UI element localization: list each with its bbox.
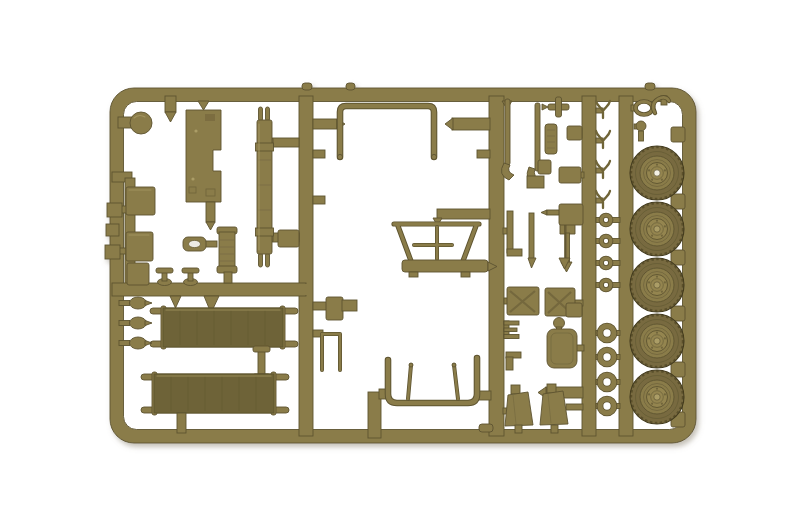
sprue xyxy=(105,83,696,443)
small-box-part xyxy=(538,160,551,174)
sprue-photo xyxy=(0,0,800,530)
small-box-part xyxy=(566,303,582,317)
stub xyxy=(313,150,325,158)
e-bracket-part xyxy=(504,321,519,339)
gate-nub xyxy=(645,83,655,90)
gate-nub xyxy=(479,424,493,432)
small-bracket-part xyxy=(278,230,299,247)
road-wheel-part xyxy=(630,370,684,424)
stub xyxy=(477,150,490,158)
knob-parts xyxy=(119,297,152,349)
small-cylinder-part xyxy=(545,124,557,154)
small-bracket-part xyxy=(527,176,544,188)
gate-nub xyxy=(302,83,312,90)
runner-v3 xyxy=(582,96,596,436)
small-box-part xyxy=(567,126,582,140)
rail-block-part xyxy=(671,127,685,142)
road-wheel-parts xyxy=(630,146,684,424)
runner-v1 xyxy=(299,96,313,436)
sprue-svg xyxy=(0,0,800,530)
road-wheel-part xyxy=(630,202,684,256)
road-wheel-part xyxy=(630,146,684,200)
runner-v4 xyxy=(619,96,633,436)
road-wheel-part xyxy=(630,314,684,368)
gate-nub xyxy=(346,83,355,90)
radio-box-part xyxy=(559,167,584,183)
jerry-can-part xyxy=(504,287,539,315)
stub xyxy=(313,196,325,204)
road-wheel-part xyxy=(630,258,684,312)
